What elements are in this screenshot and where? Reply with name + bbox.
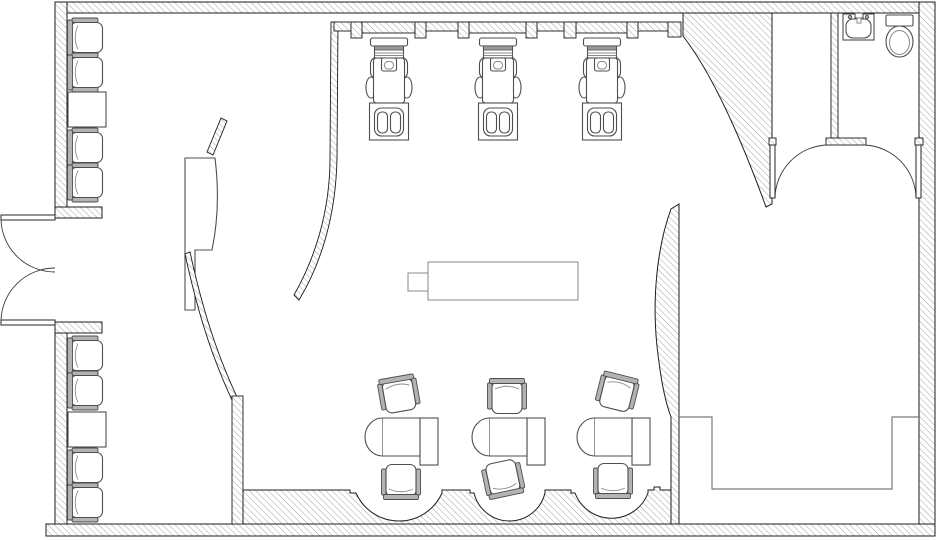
entrance-door-leaf-top <box>1 215 55 220</box>
client-chair <box>488 379 527 414</box>
restroom-door-swing <box>865 145 916 198</box>
entrance-double-door <box>1 215 55 325</box>
reception-area <box>185 118 243 524</box>
bottom-wall <box>46 524 935 536</box>
manicure-station <box>472 379 545 501</box>
pedicure-chair <box>475 38 521 140</box>
display-table-tab <box>408 273 428 291</box>
waiting-chair <box>68 18 103 57</box>
sink <box>843 13 874 40</box>
top-wall <box>55 2 935 13</box>
entrance-door-swing-top <box>1 220 55 272</box>
entrance-door-leaf-bottom <box>1 320 55 325</box>
pilaster-tab <box>668 22 681 37</box>
side-table <box>68 92 106 127</box>
entrance-door-swing-bottom <box>1 268 55 320</box>
display-table-top <box>428 262 578 300</box>
door-jamb-wall <box>826 138 866 145</box>
waiting-chair <box>68 336 103 375</box>
waiting-area <box>68 18 107 522</box>
waiting-chair <box>68 53 103 92</box>
pilaster-tab <box>458 22 469 38</box>
toilet <box>886 15 913 57</box>
manicure-station <box>365 373 438 499</box>
waiting-chair <box>68 448 103 487</box>
entrance-return-bottom <box>55 322 102 333</box>
waiting-chair <box>68 163 103 202</box>
waiting-chair <box>68 128 103 167</box>
manicure-table <box>577 418 650 465</box>
pilaster-tab <box>526 22 537 38</box>
pedicure-chair <box>366 38 412 140</box>
pedicure-chair <box>579 38 625 140</box>
manicure-table <box>472 418 545 465</box>
room-divider-wall <box>831 13 838 138</box>
manicure-area <box>243 370 671 524</box>
client-chair <box>377 373 421 414</box>
reception-curved-partition <box>185 252 237 400</box>
technician-chair <box>480 458 525 500</box>
client-chair <box>594 370 640 413</box>
left-wall-upper <box>55 2 67 218</box>
privacy-screen <box>207 118 227 155</box>
pedicure-area <box>334 22 681 140</box>
side-table <box>68 412 106 447</box>
built-in-bench-outline <box>679 417 919 489</box>
storage-door-swing <box>775 145 827 198</box>
technician-chair <box>382 465 421 500</box>
left-wall-lower <box>55 322 67 524</box>
entrance-return-top <box>55 207 102 218</box>
waiting-chair <box>68 371 103 410</box>
restroom-door-leaf <box>916 145 921 198</box>
pilaster-tab <box>415 22 426 38</box>
reception-desk <box>185 158 217 310</box>
lens-curved-wall <box>655 204 679 524</box>
station-panel <box>576 22 627 33</box>
floor-plan-canvas <box>0 0 940 540</box>
pedicure-curved-partition <box>294 22 338 300</box>
retail-display-table <box>408 262 578 300</box>
lounge-room <box>679 417 919 489</box>
back-rooms <box>769 13 923 198</box>
floor-plan-page <box>0 0 940 540</box>
door-jamb-stub <box>915 138 923 145</box>
pilaster-tab <box>564 22 576 38</box>
manicure-station <box>577 370 650 498</box>
door-jamb-stub <box>769 138 776 145</box>
manicure-divider-wall <box>232 396 243 524</box>
technician-chair <box>594 464 633 499</box>
pilaster-tab <box>627 22 638 38</box>
storage-door-leaf <box>770 145 775 198</box>
right-wall <box>919 2 935 536</box>
corner-curved-wall <box>683 13 772 207</box>
station-panel <box>469 22 526 33</box>
waiting-chair <box>68 483 103 522</box>
manicure-table <box>365 418 438 465</box>
station-panel <box>362 22 415 33</box>
pilaster-tab <box>351 22 362 38</box>
